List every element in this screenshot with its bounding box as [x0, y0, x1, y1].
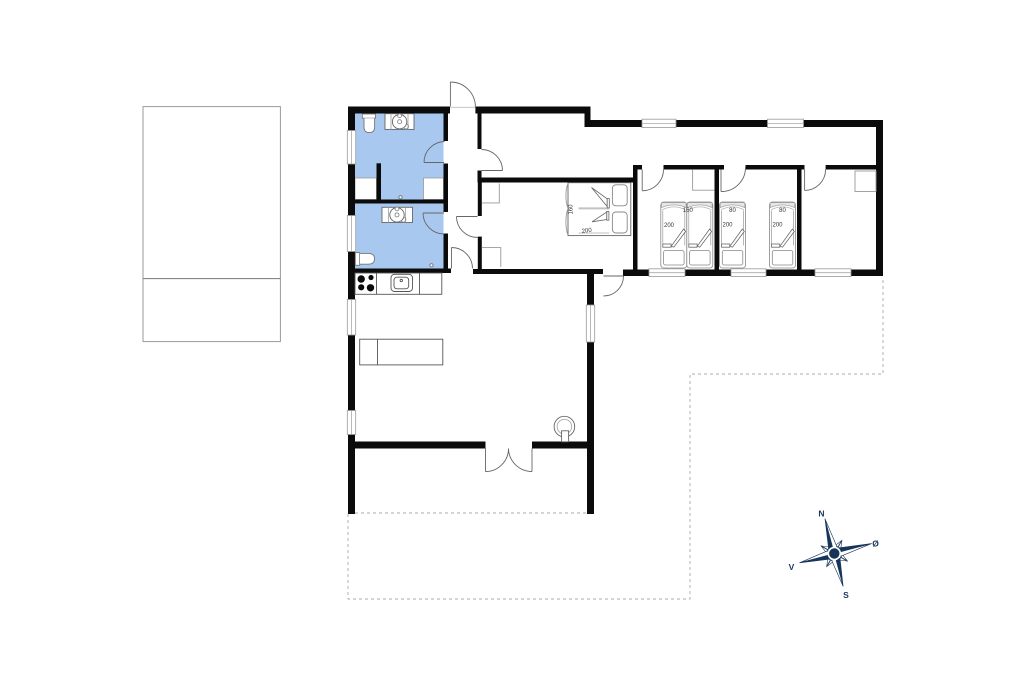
- svg-text:160: 160: [683, 208, 694, 214]
- svg-text:200: 200: [664, 223, 675, 229]
- svg-text:200: 200: [722, 223, 733, 229]
- svg-text:V: V: [789, 562, 795, 572]
- svg-text:N: N: [818, 509, 824, 519]
- svg-text:S: S: [843, 590, 849, 600]
- svg-text:80: 80: [779, 208, 786, 214]
- svg-text:160: 160: [569, 204, 575, 215]
- svg-text:80: 80: [729, 208, 736, 214]
- svg-text:Ø: Ø: [872, 539, 879, 549]
- svg-text:200: 200: [772, 223, 783, 229]
